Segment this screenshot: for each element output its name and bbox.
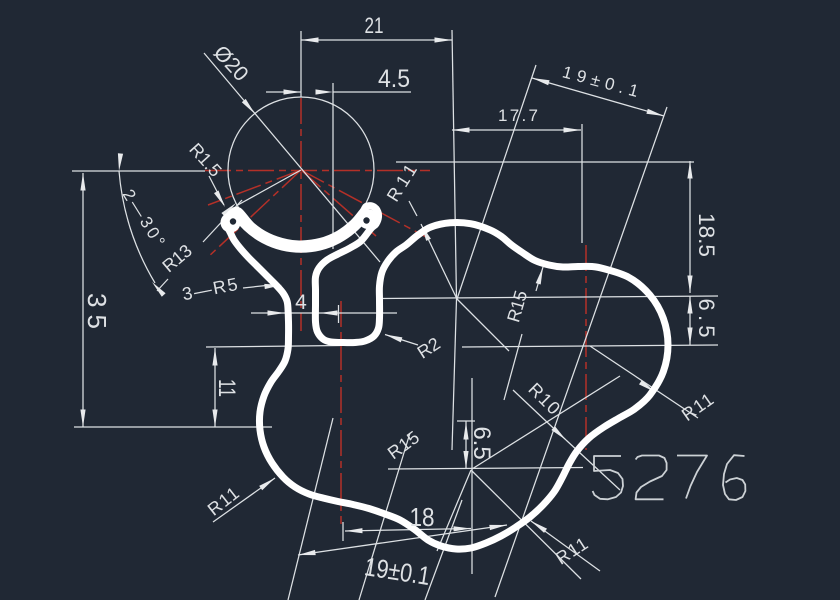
svg-text:4: 4	[295, 291, 307, 314]
svg-text:17.7: 17.7	[498, 106, 538, 125]
svg-text:18.5: 18.5	[694, 213, 719, 257]
svg-text:11: 11	[213, 379, 240, 397]
svg-text:21: 21	[365, 13, 384, 38]
svg-text:6.5: 6.5	[468, 426, 495, 459]
svg-text:18: 18	[410, 502, 435, 532]
svg-text:4.5: 4.5	[378, 65, 410, 93]
svg-text:6.5: 6.5	[694, 299, 719, 338]
